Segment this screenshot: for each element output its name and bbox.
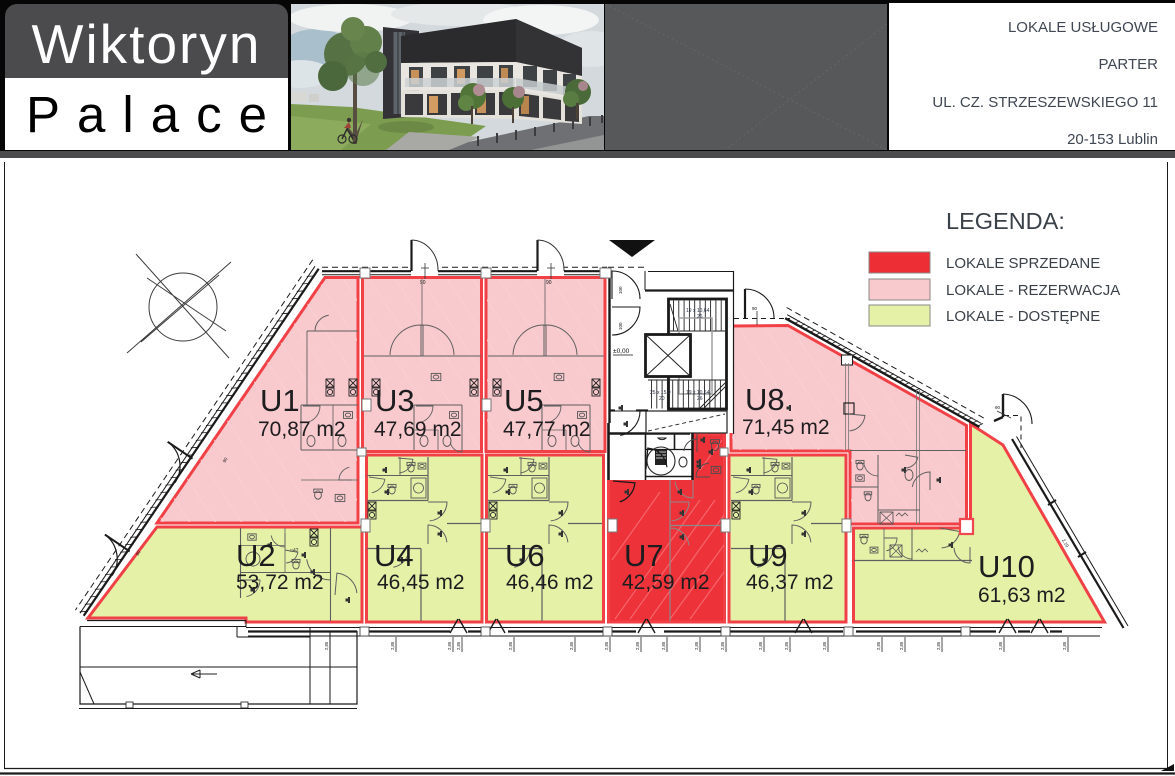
svg-text:2,85: 2,85 (569, 641, 574, 650)
svg-text:26: 26 (697, 314, 703, 320)
svg-text:46,45 m2: 46,45 m2 (377, 571, 465, 594)
svg-text:2,85: 2,85 (1062, 641, 1067, 650)
svg-text:2,85: 2,85 (604, 641, 609, 650)
svg-text:42,59 m2: 42,59 m2 (622, 571, 710, 594)
svg-text:U5: U5 (504, 383, 544, 418)
svg-text:90: 90 (752, 306, 758, 311)
svg-text:90: 90 (546, 280, 552, 286)
svg-text:2,85: 2,85 (784, 641, 789, 650)
svg-text:2,85: 2,85 (508, 641, 513, 650)
svg-text:LEGENDA:: LEGENDA: (946, 208, 1065, 234)
svg-text:U10: U10 (978, 549, 1035, 584)
svg-text:2,85: 2,85 (876, 641, 881, 650)
svg-text:2,85: 2,85 (998, 641, 1003, 650)
svg-text:71,45 m2: 71,45 m2 (742, 416, 830, 439)
svg-text:U3: U3 (375, 383, 415, 418)
svg-text:U4: U4 (374, 538, 414, 573)
svg-text:2,85: 2,85 (936, 641, 941, 650)
svg-text:U9: U9 (748, 538, 788, 573)
svg-text:U6: U6 (505, 538, 545, 573)
svg-text:2,85: 2,85 (661, 641, 666, 650)
svg-text:100: 100 (618, 322, 623, 330)
svg-text:U2: U2 (236, 538, 276, 573)
svg-text:2,85: 2,85 (324, 641, 329, 650)
svg-text:U8: U8 (745, 382, 785, 417)
svg-text:70,87 m2: 70,87 m2 (258, 418, 346, 441)
svg-text:2,85: 2,85 (720, 641, 725, 650)
svg-text:20: 20 (659, 396, 665, 402)
svg-text:2,85: 2,85 (899, 641, 904, 650)
svg-text:2,85: 2,85 (758, 641, 763, 650)
svg-text:47,69 m2: 47,69 m2 (374, 418, 462, 441)
svg-text:U1: U1 (260, 383, 300, 418)
svg-text:90: 90 (420, 280, 426, 286)
svg-text:2,85: 2,85 (456, 641, 461, 650)
svg-text:±0,00: ±0,00 (613, 348, 630, 355)
svg-text:26: 26 (697, 396, 703, 402)
svg-text:46,37 m2: 46,37 m2 (746, 571, 834, 594)
svg-text:U7: U7 (624, 538, 664, 573)
svg-text:100: 100 (618, 286, 623, 294)
svg-text:2,85: 2,85 (694, 641, 699, 650)
svg-text:LOKALE - DOSTĘPNE: LOKALE - DOSTĘPNE (946, 308, 1100, 325)
svg-text:2,85: 2,85 (390, 641, 395, 650)
svg-text:□42: □42 (290, 548, 299, 554)
svg-text:53,72 m2: 53,72 m2 (236, 571, 324, 594)
svg-text:46,46 m2: 46,46 m2 (506, 571, 594, 594)
svg-text:61,63 m2: 61,63 m2 (978, 584, 1066, 607)
svg-text:90: 90 (995, 405, 1001, 410)
svg-text:LOKALE - REZERWACJA: LOKALE - REZERWACJA (946, 282, 1120, 299)
svg-text:2,85: 2,85 (635, 641, 640, 650)
svg-text:2,85: 2,85 (447, 641, 452, 650)
svg-text:47,77 m2: 47,77 m2 (503, 418, 591, 441)
svg-text:2,85: 2,85 (822, 641, 827, 650)
svg-text:LOKALE SPRZEDANE: LOKALE SPRZEDANE (946, 255, 1100, 272)
